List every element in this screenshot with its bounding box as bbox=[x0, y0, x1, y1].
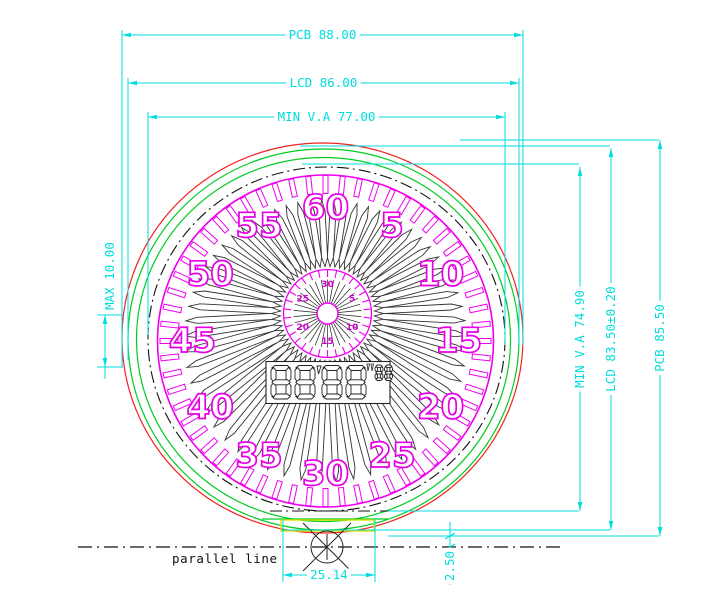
dimension-label-pcb-height: PCB 85.50 bbox=[652, 304, 667, 372]
lcd-dial-technical-drawing: 6051015202530354045505530510152025parall… bbox=[0, 0, 714, 596]
dial-tick bbox=[190, 426, 208, 441]
dimension-label-tab-width: 25.14 bbox=[310, 567, 348, 582]
inner-dial-number-15: 15 bbox=[321, 337, 334, 347]
dimension-arrow bbox=[578, 167, 583, 176]
dial-tick bbox=[383, 189, 395, 207]
dial-tick bbox=[469, 304, 488, 313]
dimension-label-group: MIN V.A 74.90 bbox=[572, 287, 587, 392]
segment bbox=[385, 371, 392, 374]
dimension-arrow bbox=[609, 521, 614, 530]
dimension-arrow bbox=[658, 140, 663, 149]
dimension-label-pcb-edge-to-parallel-line: 2.50 bbox=[442, 551, 457, 581]
dial-tick bbox=[289, 179, 298, 198]
segment-digit bbox=[375, 365, 383, 381]
dimension-arrow bbox=[510, 81, 519, 86]
segment-digit bbox=[271, 366, 291, 400]
segment-digit bbox=[346, 366, 366, 400]
dial-tick bbox=[369, 183, 379, 202]
inner-dial-number-25: 25 bbox=[297, 294, 310, 304]
dimension-arrow bbox=[366, 573, 375, 578]
dimension-arrow bbox=[103, 358, 108, 367]
inner-dial-tick bbox=[364, 317, 371, 318]
dial-tick bbox=[201, 228, 218, 244]
dimension-label-group: LCD 83.50±0.20 bbox=[603, 283, 618, 395]
dimension-arrow bbox=[514, 33, 523, 38]
dial-number-30: 30 bbox=[302, 454, 349, 494]
segment bbox=[296, 380, 315, 385]
dial-tick bbox=[469, 369, 488, 378]
dimension-arrow bbox=[148, 115, 157, 120]
inner-dial-tick bbox=[284, 309, 291, 310]
dial-tick bbox=[410, 206, 425, 224]
dial-tick bbox=[256, 475, 268, 493]
dial-tick bbox=[369, 481, 379, 500]
dimension-label-lcd-height: LCD 83.50±0.20 bbox=[603, 286, 618, 391]
dimension-label-max-offset: MAX 10.00 bbox=[102, 242, 117, 310]
dial-tick bbox=[272, 481, 282, 500]
dimension-arrow bbox=[103, 315, 108, 324]
dial-tick bbox=[443, 426, 461, 441]
segment bbox=[376, 371, 383, 374]
dial-tick bbox=[213, 216, 229, 233]
segment bbox=[323, 380, 342, 385]
dimension-label-min-va-height: MIN V.A 74.90 bbox=[572, 290, 587, 388]
inner-dial-tick bbox=[364, 309, 371, 310]
segment-digit bbox=[322, 366, 342, 400]
dial-number-15: 15 bbox=[435, 321, 482, 361]
dial-number-20: 20 bbox=[417, 388, 464, 428]
dimension-label-pcb-width: PCB 88.00 bbox=[289, 27, 357, 42]
inner-dial-number-30: 30 bbox=[321, 280, 334, 290]
dial-number-50: 50 bbox=[187, 255, 234, 295]
dial-tick bbox=[256, 189, 268, 207]
dial-tick bbox=[163, 304, 182, 313]
dial-number-55: 55 bbox=[235, 206, 282, 246]
dimension-arrow bbox=[658, 527, 663, 536]
dial-number-10: 10 bbox=[417, 255, 464, 295]
dimension-label-group: 2.50 bbox=[442, 548, 457, 584]
dimension-label-group: MAX 10.00 bbox=[102, 239, 117, 313]
dial-number-60: 60 bbox=[302, 188, 349, 228]
dial-number-40: 40 bbox=[187, 388, 234, 428]
segment bbox=[272, 380, 291, 385]
dimension-arrow bbox=[578, 502, 583, 511]
dial-tick bbox=[422, 449, 438, 466]
dimension-arrow bbox=[122, 33, 131, 38]
inner-dial-number-10: 10 bbox=[346, 323, 359, 333]
dial-tick bbox=[272, 183, 282, 202]
segment-digit bbox=[385, 365, 393, 381]
dimension-label-group: 25.14 bbox=[307, 567, 351, 582]
dial-tick bbox=[433, 438, 450, 454]
dial-tick bbox=[354, 485, 363, 504]
dial-tick bbox=[354, 179, 363, 198]
dimension-label-group: MIN V.A 77.00 bbox=[274, 109, 379, 124]
dimension-arrow bbox=[283, 573, 292, 578]
dimension-label-min-va-width: MIN V.A 77.00 bbox=[278, 109, 376, 124]
dial-number-35: 35 bbox=[235, 436, 282, 476]
dial-tick bbox=[163, 369, 182, 378]
inner-dial-tick bbox=[284, 317, 291, 318]
dial-tick bbox=[167, 384, 186, 394]
dimension-label-group: PCB 88.00 bbox=[285, 27, 359, 42]
inner-dial-number-20: 20 bbox=[297, 323, 310, 333]
dial-number-45: 45 bbox=[169, 321, 216, 361]
segment bbox=[347, 380, 366, 385]
dial-number-5: 5 bbox=[380, 206, 404, 246]
dial-tick bbox=[422, 216, 438, 233]
dimension-label-group: LCD 86.00 bbox=[286, 75, 360, 90]
dial-tick bbox=[201, 438, 218, 454]
dial-tick bbox=[213, 449, 229, 466]
dial-number-25: 25 bbox=[368, 436, 415, 476]
dimension-label-lcd-width: LCD 86.00 bbox=[290, 75, 358, 90]
dimension-label-group: PCB 85.50 bbox=[652, 301, 667, 375]
dial-tick bbox=[289, 485, 298, 504]
cad-drawing-stage: 6051015202530354045505530510152025parall… bbox=[0, 0, 714, 596]
dimension-arrow bbox=[128, 81, 137, 86]
dial-tick bbox=[167, 287, 186, 297]
segment-digit bbox=[295, 366, 315, 400]
inner-dial-hub bbox=[317, 303, 338, 324]
dimension-arrow bbox=[609, 148, 614, 157]
dial-tick bbox=[433, 228, 450, 244]
dial-tick bbox=[383, 475, 395, 493]
dimension-arrow bbox=[496, 115, 505, 120]
dial-tick bbox=[465, 287, 484, 297]
parallel-line-label: parallel line bbox=[172, 551, 278, 566]
dial-tick bbox=[465, 384, 484, 394]
inner-dial-number-5: 5 bbox=[349, 294, 355, 304]
